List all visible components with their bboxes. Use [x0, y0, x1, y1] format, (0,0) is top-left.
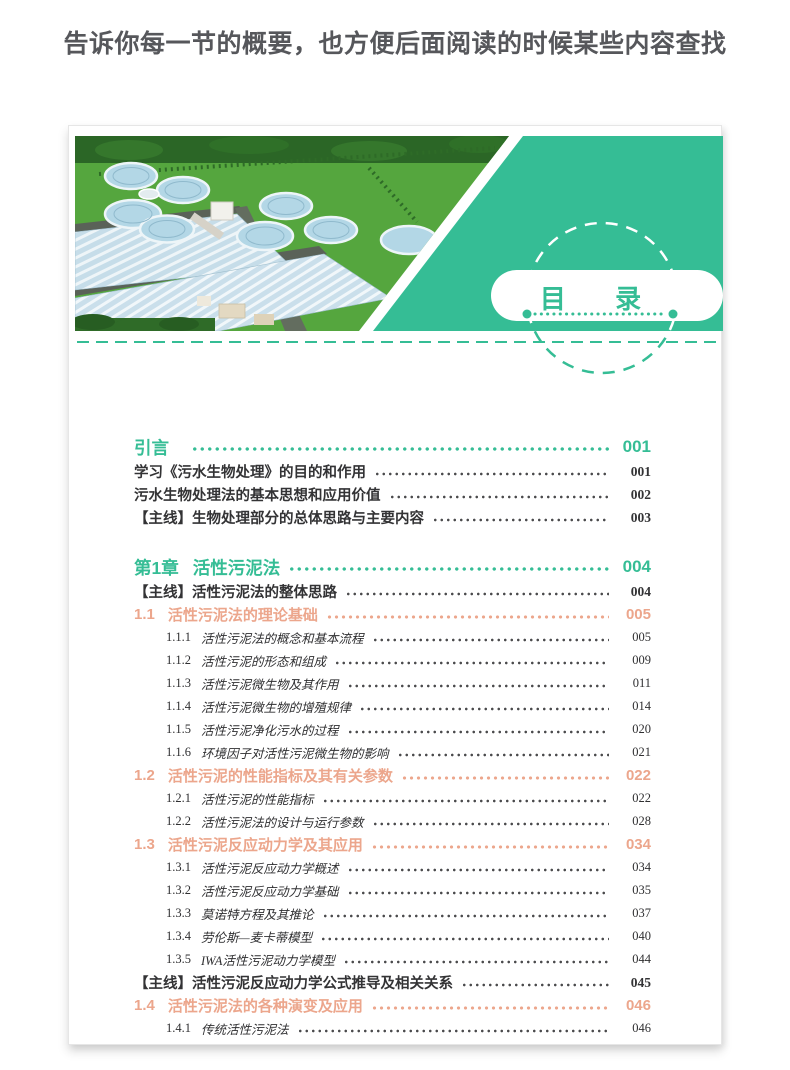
toc-entry-title: 活性污泥的形态和组成: [201, 651, 326, 670]
underline-left-dot: [523, 310, 532, 319]
toc-entry-number: 1.1.1: [166, 630, 191, 645]
toc-row: 引言001: [134, 434, 651, 460]
toc-dot-leader: [322, 799, 609, 803]
toc-entry-page-number: 002: [615, 487, 651, 503]
toc-dot-leader: [345, 592, 609, 596]
toc-row: 第1章活性污泥法004: [134, 554, 651, 580]
toc-row: 污水生物处理法的基本思想和应用价值002: [134, 483, 651, 506]
toc-row: 【主线】活性污泥反应动力学公式推导及相关关系045: [134, 971, 651, 994]
toc-entry-number: 1.2.2: [166, 814, 191, 829]
toc-dot-leader: [401, 776, 609, 780]
toc-entry-title: 【主线】生物处理部分的总体思路与主要内容: [134, 507, 424, 528]
toc-row: 1.2.2活性污泥法的设计与运行参数028: [134, 810, 651, 833]
toc-entry-title: 活性污泥净化污水的过程: [201, 720, 339, 739]
toc-row: 【主线】生物处理部分的总体思路与主要内容003: [134, 506, 651, 529]
toc-entry-title: 【主线】活性污泥法的整体思路: [134, 581, 337, 602]
toc-entry-number: 1.3.3: [166, 906, 191, 921]
toc-entry-page-number: 014: [615, 699, 651, 714]
toc-entry-title: 莫诺特方程及其推论: [201, 904, 314, 923]
toc-entry-number: 1.1.4: [166, 699, 191, 714]
toc-dot-leader: [372, 822, 609, 826]
toc-dot-leader: [343, 960, 609, 964]
headline-text: 告诉你每一节的概要，也方便后面阅读的时候某些内容查找: [0, 24, 790, 60]
toc-entry-number: 1.1: [134, 606, 155, 623]
toc-dot-leader: [374, 472, 609, 476]
toc-entry-number: 引言: [134, 435, 169, 460]
toc-row: 1.3.3莫诺特方程及其推论037: [134, 902, 651, 925]
toc-entry-page-number: 040: [615, 929, 651, 944]
toc-entry-page-number: 021: [615, 745, 651, 760]
toc-entry-page-number: 022: [615, 791, 651, 806]
toc-entry-number: 1.3: [134, 836, 155, 853]
toc-entry-number: 1.3.1: [166, 860, 191, 875]
toc-entry-page-number: 046: [615, 1021, 651, 1036]
toc-list: 引言001学习《污水生物处理》的目的和作用001污水生物处理法的基本思想和应用价…: [134, 434, 651, 1040]
toc-entry-page-number: 004: [615, 557, 651, 577]
underline-right-dot: [669, 310, 678, 319]
toc-dot-leader: [372, 638, 609, 642]
toc-dot-leader: [297, 1029, 609, 1033]
toc-dot-leader: [371, 1006, 609, 1010]
toc-entry-title: 污水生物处理法的基本思想和应用价值: [134, 484, 381, 505]
toc-entry-page-number: 035: [615, 883, 651, 898]
toc-entry-page-number: 034: [615, 860, 651, 875]
toc-row: 1.1.6环境因子对活性污泥微生物的影响021: [134, 741, 651, 764]
toc-dot-leader: [371, 845, 609, 849]
toc-entry-number: 1.2.1: [166, 791, 191, 806]
toc-entry-page-number: 037: [615, 906, 651, 921]
toc-entry-page-number: 046: [615, 997, 651, 1014]
toc-entry-title: 活性污泥法的设计与运行参数: [201, 812, 364, 831]
toc-entry-title: 活性污泥的性能指标: [201, 789, 314, 808]
toc-entry-number: 1.1.2: [166, 653, 191, 668]
toc-entry-title: 活性污泥法的各种演变及应用: [168, 995, 363, 1016]
toc-entry-number: 1.3.2: [166, 883, 191, 898]
toc-entry-title: 活性污泥法: [193, 555, 281, 580]
toc-dot-leader: [347, 730, 609, 734]
toc-row: 学习《污水生物处理》的目的和作用001: [134, 460, 651, 483]
toc-row: 1.1.1活性污泥法的概念和基本流程005: [134, 626, 651, 649]
toc-entry-page-number: 001: [615, 437, 651, 457]
toc-entry-title: 活性污泥反应动力学概述: [201, 858, 339, 877]
toc-entry-page-number: 011: [615, 676, 651, 691]
toc-entry-page-number: 022: [615, 767, 651, 784]
toc-row: 1.2.1活性污泥的性能指标022: [134, 787, 651, 810]
toc-entry-number: 1.4: [134, 997, 155, 1014]
toc-entry-page-number: 028: [615, 814, 651, 829]
screenshot-root: 告诉你每一节的概要，也方便后面阅读的时候某些内容查找: [0, 0, 790, 1070]
toc-dot-leader: [347, 868, 609, 872]
toc-entry-title: 活性污泥反应动力学基础: [201, 881, 339, 900]
toc-entry-number: 1.1.5: [166, 722, 191, 737]
toc-dot-leader: [389, 495, 610, 499]
toc-entry-page-number: 004: [615, 584, 651, 600]
toc-entry-number: 1.4.1: [166, 1021, 191, 1036]
toc-entry-number: 1.2: [134, 767, 155, 784]
toc-entry-page-number: 005: [615, 606, 651, 623]
toc-row: 1.3活性污泥反应动力学及其应用034: [134, 833, 651, 856]
toc-dot-leader: [397, 753, 609, 757]
toc-book-page: 目 录 引言001学习《污水生物处理》的目的和作用001污水生物处理法的基本思想…: [68, 125, 722, 1045]
toc-dot-leader: [326, 615, 609, 619]
toc-entry-title: 环境因子对活性污泥微生物的影响: [201, 743, 389, 762]
toc-entry-title: 传统活性污泥法: [201, 1019, 289, 1038]
toc-entry-number: 第1章: [134, 555, 179, 580]
toc-dot-leader: [347, 891, 609, 895]
toc-entry-number: 1.3.4: [166, 929, 191, 944]
toc-row: 1.1活性污泥法的理论基础005: [134, 603, 651, 626]
toc-entry-page-number: 045: [615, 975, 651, 991]
toc-dot-leader: [191, 447, 609, 451]
toc-dot-leader: [320, 937, 609, 941]
toc-dot-leader: [432, 518, 609, 522]
toc-entry-title: 【主线】活性污泥反应动力学公式推导及相关关系: [134, 972, 453, 993]
toc-title: 目 录: [540, 284, 662, 314]
page-header-graphic: 目 录: [69, 126, 723, 386]
toc-entry-page-number: 034: [615, 836, 651, 853]
toc-entry-title: 活性污泥法的理论基础: [168, 604, 318, 625]
toc-row: 1.3.1活性污泥反应动力学概述034: [134, 856, 651, 879]
toc-entry-number: 1.3.5: [166, 952, 191, 967]
toc-entry-title: 活性污泥法的概念和基本流程: [201, 628, 364, 647]
toc-row: 1.1.2活性污泥的形态和组成009: [134, 649, 651, 672]
toc-row: 1.1.5活性污泥净化污水的过程020: [134, 718, 651, 741]
toc-row: 1.1.4活性污泥微生物的增殖规律014: [134, 695, 651, 718]
toc-entry-page-number: 005: [615, 630, 651, 645]
toc-entry-title: IWA活性污泥动力学模型: [201, 950, 335, 969]
toc-entry-number: 1.1.6: [166, 745, 191, 760]
toc-entry-title: 活性污泥反应动力学及其应用: [168, 834, 363, 855]
toc-row: 1.1.3活性污泥微生物及其作用011: [134, 672, 651, 695]
toc-entry-page-number: 001: [615, 464, 651, 480]
toc-dot-leader: [461, 983, 609, 987]
toc-row: 1.3.2活性污泥反应动力学基础035: [134, 879, 651, 902]
toc-row: 【主线】活性污泥法的整体思路004: [134, 580, 651, 603]
toc-entry-title: 活性污泥的性能指标及其有关参数: [168, 765, 393, 786]
toc-row: 1.4.1传统活性污泥法046: [134, 1017, 651, 1040]
toc-entry-page-number: 009: [615, 653, 651, 668]
toc-entry-title: 活性污泥微生物及其作用: [201, 674, 339, 693]
toc-dot-leader: [347, 684, 609, 688]
toc-entry-title: 学习《污水生物处理》的目的和作用: [134, 461, 366, 482]
toc-dot-leader: [359, 707, 609, 711]
toc-dot-leader: [322, 914, 609, 918]
toc-row: 1.4活性污泥法的各种演变及应用046: [134, 994, 651, 1017]
toc-entry-page-number: 020: [615, 722, 651, 737]
toc-row: 1.3.4劳伦斯—麦卡蒂模型040: [134, 925, 651, 948]
toc-row: 1.2活性污泥的性能指标及其有关参数022: [134, 764, 651, 787]
toc-entry-page-number: 003: [615, 510, 651, 526]
toc-entry-page-number: 044: [615, 952, 651, 967]
toc-dot-leader: [288, 567, 609, 571]
toc-dot-leader: [334, 661, 609, 665]
toc-entry-title: 劳伦斯—麦卡蒂模型: [201, 927, 312, 946]
toc-entry-title: 活性污泥微生物的增殖规律: [201, 697, 351, 716]
toc-row: 1.3.5IWA活性污泥动力学模型044: [134, 948, 651, 971]
toc-entry-number: 1.1.3: [166, 676, 191, 691]
